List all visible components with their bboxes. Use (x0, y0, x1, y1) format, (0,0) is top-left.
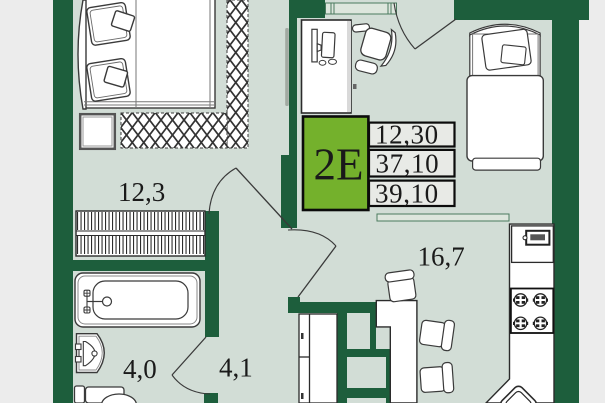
svg-text:2Е: 2Е (314, 140, 364, 190)
svg-text:4,0: 4,0 (123, 354, 157, 384)
svg-text:12,3: 12,3 (118, 177, 165, 207)
svg-text:39,10: 39,10 (375, 179, 439, 209)
svg-text:37,10: 37,10 (376, 149, 440, 179)
svg-text:16,7: 16,7 (418, 241, 465, 271)
svg-text:4,1: 4,1 (219, 353, 253, 383)
svg-text:12,30: 12,30 (375, 119, 439, 149)
